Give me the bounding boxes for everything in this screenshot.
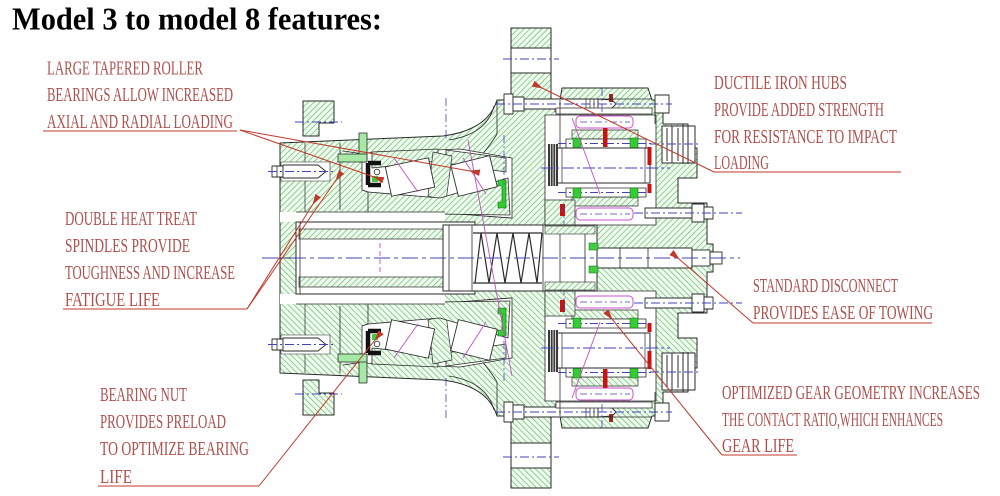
svg-text:DOUBLE HEAT TREAT: DOUBLE HEAT TREAT [65,209,197,230]
svg-text:PROVIDE ADDED STRENGTH: PROVIDE ADDED STRENGTH [714,100,884,121]
svg-text:TO OPTIMIZE BEARING: TO OPTIMIZE BEARING [100,439,249,460]
svg-text:THE CONTACT RATIO,WHICH ENHANC: THE CONTACT RATIO,WHICH ENHANCES [722,410,943,431]
svg-text:GEAR LIFE: GEAR LIFE [722,436,794,457]
svg-text:BEARING NUT: BEARING NUT [100,385,187,406]
svg-text:LARGE TAPERED ROLLER: LARGE TAPERED ROLLER [47,59,203,80]
svg-text:PROVIDES PRELOAD: PROVIDES PRELOAD [100,412,226,433]
svg-text:TOUGHNESS AND INCREASE: TOUGHNESS AND INCREASE [65,263,235,284]
svg-text:STANDARD DISCONNECT: STANDARD DISCONNECT [753,276,898,297]
svg-text:FOR RESISTANCE TO IMPACT: FOR RESISTANCE TO IMPACT [714,127,897,148]
svg-text:OPTIMIZED GEAR GEOMETRY INCREA: OPTIMIZED GEAR GEOMETRY INCREASES [722,383,980,404]
svg-text:DUCTILE IRON HUBS: DUCTILE IRON HUBS [714,73,847,94]
svg-text:Model 3 to model 8 features:: Model 3 to model 8 features: [12,1,382,37]
svg-text:BEARINGS ALLOW INCREASED: BEARINGS ALLOW INCREASED [47,85,233,106]
svg-text:SPINDLES PROVIDE: SPINDLES PROVIDE [65,236,190,257]
svg-text:PROVIDES EASE OF TOWING: PROVIDES EASE OF TOWING [753,303,933,324]
svg-text:LIFE: LIFE [100,467,132,488]
svg-text:LOADING: LOADING [714,153,769,174]
svg-text:AXIAL AND RADIAL LOADING: AXIAL AND RADIAL LOADING [47,112,233,133]
svg-text:FATIGUE LIFE: FATIGUE LIFE [65,290,160,311]
